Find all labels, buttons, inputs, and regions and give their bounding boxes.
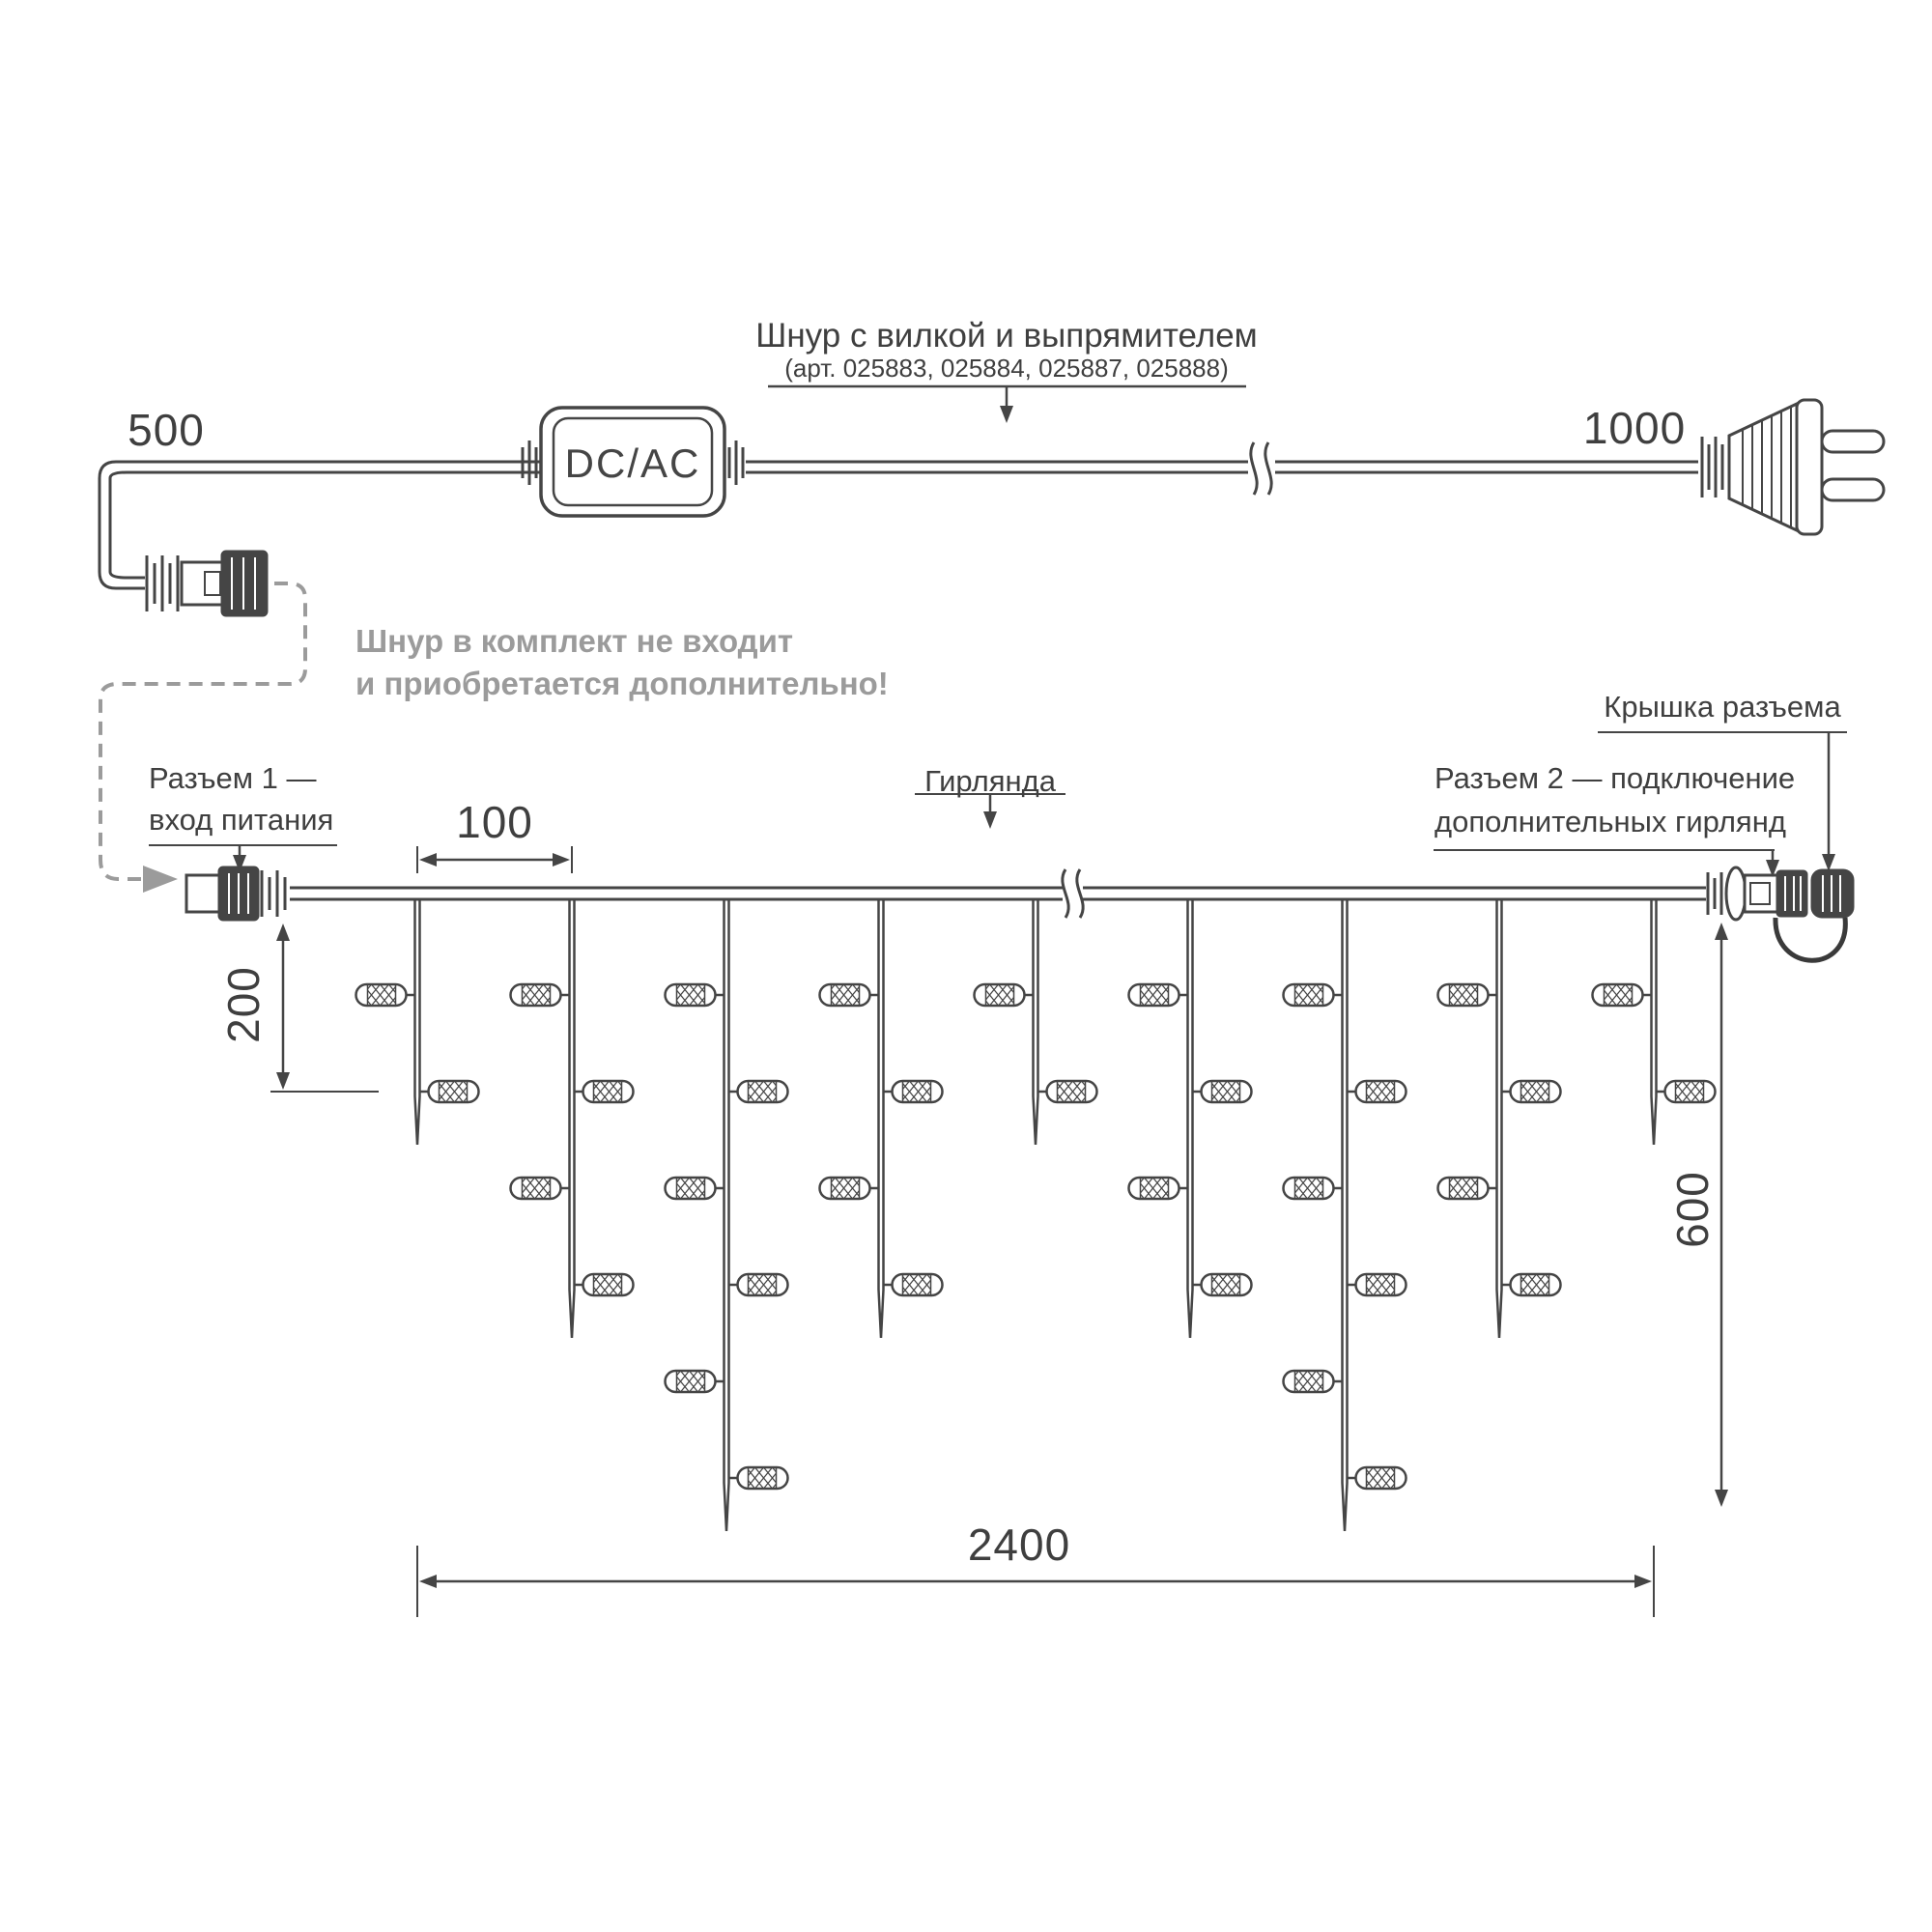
- garland-drawing: [149, 732, 1853, 1617]
- technical-diagram: Шнур с вилкой и выпрямителем (арт. 02588…: [0, 0, 1932, 1932]
- led-bulb-icon: [975, 984, 1034, 1006]
- led-bulb-icon: [1284, 1178, 1343, 1199]
- note-line1: Шнур в комплект не входит: [355, 623, 793, 660]
- dim-1000-label: 1000: [1583, 402, 1686, 454]
- title-leader-arrow: [768, 386, 1246, 423]
- cord-break-icon: [1251, 442, 1271, 495]
- note-line2: и приобретается дополнительно!: [355, 666, 889, 702]
- icicle-drop: [724, 899, 729, 1531]
- connector2-label-line1: Разъем 2 — подключение: [1435, 761, 1773, 796]
- connector1-label-line2: вход питания: [149, 803, 333, 838]
- led-bulbs: [356, 984, 1716, 1489]
- led-bulb-icon: [729, 1081, 788, 1102]
- garland-label: Гирлянда: [924, 764, 1056, 799]
- garland-wire: [290, 888, 1706, 899]
- led-bulb-icon: [729, 1467, 788, 1489]
- icicle-drop: [1652, 899, 1657, 1145]
- power-plug-icon: [1702, 400, 1884, 534]
- icicle-drop: [879, 899, 884, 1338]
- wire-break-icon: [1063, 869, 1083, 918]
- led-bulb-icon: [729, 1274, 788, 1295]
- led-bulb-icon: [511, 1178, 570, 1199]
- led-bulb-icon: [1038, 1081, 1097, 1102]
- led-bulb-icon: [511, 984, 570, 1006]
- cap-label: Крышка разъема: [1604, 690, 1840, 724]
- led-bulb-icon: [1502, 1081, 1561, 1102]
- dim-600-label: 600: [1666, 1171, 1719, 1248]
- icicle-drop: [1034, 899, 1038, 1145]
- led-bulb-icon: [884, 1081, 943, 1102]
- dim-200: [270, 923, 379, 1092]
- connector2-label-line2: дополнительных гирлянд: [1435, 805, 1773, 839]
- led-bulb-icon: [1193, 1274, 1252, 1295]
- led-bulb-icon: [1284, 984, 1343, 1006]
- garland-output-connector-icon: [1708, 867, 1806, 920]
- led-bulb-icon: [1438, 1178, 1497, 1199]
- cord-connector-icon: [147, 552, 267, 615]
- led-bulb-icon: [666, 1371, 724, 1392]
- led-bulb-icon: [666, 1178, 724, 1199]
- led-bulb-icon: [884, 1274, 943, 1295]
- converter-label: DC/AC: [565, 440, 701, 487]
- dim-2400-label: 2400: [968, 1519, 1070, 1571]
- led-bulb-icon: [1129, 1178, 1188, 1199]
- led-bulb-icon: [420, 1081, 479, 1102]
- led-bulb-icon: [1129, 984, 1188, 1006]
- garland-input-connector-icon: [186, 867, 285, 920]
- led-bulb-icon: [1348, 1467, 1406, 1489]
- led-bulb-icon: [575, 1081, 634, 1102]
- cord-right-segment: [746, 462, 1698, 472]
- led-bulb-icon: [1657, 1081, 1716, 1102]
- cord-subtitle: (арт. 025883, 025884, 025887, 025888): [784, 354, 1229, 384]
- led-bulb-icon: [820, 984, 879, 1006]
- led-bulb-icon: [1593, 984, 1652, 1006]
- icicle-drop: [1497, 899, 1502, 1338]
- icicle-drop: [570, 899, 575, 1338]
- cord-left-segment: [99, 462, 541, 588]
- led-bulb-icon: [1438, 984, 1497, 1006]
- dim-100: [417, 846, 572, 873]
- cord-title: Шнур с вилкой и выпрямителем: [755, 317, 1257, 355]
- led-bulb-icon: [1193, 1081, 1252, 1102]
- icicle-drop: [415, 899, 420, 1145]
- led-bulb-icon: [1284, 1371, 1343, 1392]
- garland-leader-arrow: [915, 794, 1065, 829]
- icicle-drop: [1343, 899, 1348, 1531]
- led-bulb-icon: [356, 984, 415, 1006]
- led-bulb-icon: [820, 1178, 879, 1199]
- led-bulb-icon: [666, 984, 724, 1006]
- dim-100-label: 100: [456, 796, 533, 848]
- led-bulb-icon: [1502, 1274, 1561, 1295]
- dim-200-label: 200: [217, 966, 270, 1043]
- diagram-lineart: [0, 0, 1932, 1932]
- led-bulb-icon: [575, 1274, 634, 1295]
- led-bulb-icon: [1348, 1081, 1406, 1102]
- dim-500-label: 500: [128, 404, 205, 456]
- connector2-leader-arrow: [1434, 850, 1779, 877]
- led-bulb-icon: [1348, 1274, 1406, 1295]
- icicle-drop: [1188, 899, 1193, 1338]
- dashed-route-arrow-icon: [143, 866, 178, 893]
- connector1-label-line1: Разъем 1 —: [149, 761, 316, 796]
